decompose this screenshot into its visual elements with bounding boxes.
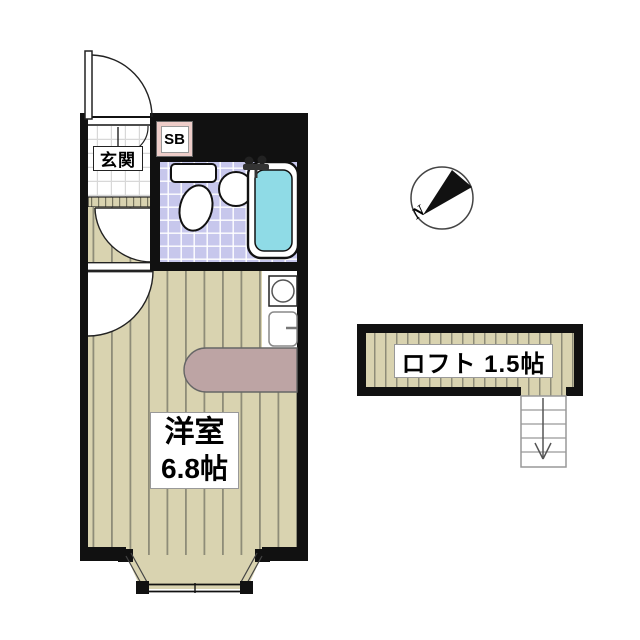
loft-label: ロフト 1.5帖 <box>394 344 553 378</box>
loft-stairs <box>521 396 566 467</box>
entrance-label: 玄関 <box>93 146 143 171</box>
entrance-step <box>88 197 152 207</box>
floor-plan: 玄関 SB 洋室 6.8帖 ロフト 1.5帖 N <box>0 0 640 640</box>
shoe-box-label: SB <box>161 126 189 153</box>
kitchen <box>262 271 297 353</box>
main-room-label: 洋室 6.8帖 <box>150 412 239 489</box>
counter <box>184 348 297 392</box>
hallway-floor <box>88 207 152 263</box>
room-size: 6.8帖 <box>161 451 228 487</box>
shoe-box: SB <box>156 121 193 157</box>
bathtub <box>243 156 298 259</box>
floor-plan-drawing <box>0 0 640 640</box>
stove-burner-icon <box>272 280 294 302</box>
room-name: 洋室 <box>165 415 225 451</box>
hallway-threshold <box>88 262 160 271</box>
